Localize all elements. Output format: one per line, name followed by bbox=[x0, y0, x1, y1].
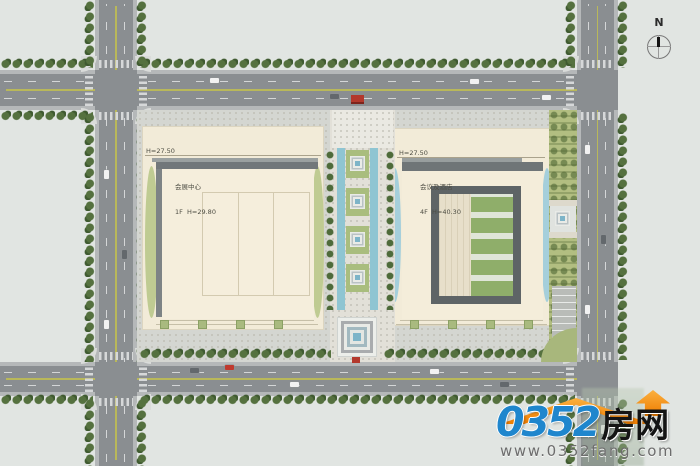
street-tree-row bbox=[565, 0, 577, 68]
axis-entry-plaza bbox=[332, 110, 393, 148]
crosswalk bbox=[581, 352, 614, 360]
planter bbox=[448, 320, 457, 329]
planter bbox=[524, 320, 533, 329]
label-exhibition-platform-elevation: H=27.50 bbox=[146, 147, 175, 155]
car bbox=[430, 369, 439, 374]
crosswalk bbox=[99, 398, 133, 406]
water-channel bbox=[337, 148, 345, 310]
water-channel bbox=[370, 148, 378, 310]
street-tree-row bbox=[84, 0, 96, 68]
label-hotel: 会议及酒店 4F H=40.30 bbox=[420, 166, 461, 234]
crosswalk bbox=[581, 112, 614, 120]
north-label: N bbox=[636, 16, 682, 29]
site-plan: H=27.50 会展中心 1F H=29.80 H=27.50 会议及酒店 4F… bbox=[0, 0, 700, 466]
platform-step-line bbox=[400, 320, 543, 321]
street-tree-row bbox=[0, 58, 93, 70]
crosswalk bbox=[139, 74, 147, 106]
label-exhibition-name: 会展中心 bbox=[175, 183, 216, 191]
label-hotel-name: 会议及酒店 bbox=[420, 183, 461, 191]
street-tree-row bbox=[136, 0, 148, 68]
garden-fountain bbox=[560, 216, 565, 221]
planter bbox=[198, 320, 207, 329]
promenade-tree-row bbox=[139, 348, 331, 360]
intersection-ne bbox=[577, 70, 618, 110]
watermark-url: www.0352fang.com bbox=[500, 442, 674, 460]
car bbox=[104, 170, 109, 179]
crosswalk bbox=[99, 60, 133, 68]
street-tree-row bbox=[139, 58, 575, 70]
crosswalk bbox=[85, 74, 93, 106]
planter bbox=[274, 320, 283, 329]
courtyard-green-terraces bbox=[471, 194, 513, 296]
street-tree-row bbox=[0, 110, 93, 122]
street-tree-row bbox=[136, 398, 148, 466]
crosswalk bbox=[581, 60, 614, 68]
crosswalk bbox=[566, 74, 574, 106]
intersection-sw bbox=[95, 362, 137, 396]
fountain bbox=[355, 199, 360, 204]
car bbox=[190, 368, 199, 373]
fountain bbox=[355, 161, 360, 166]
car bbox=[104, 320, 109, 329]
label-hotel-spec: 4F H=40.30 bbox=[420, 208, 461, 216]
crosswalk bbox=[99, 112, 133, 120]
planter bbox=[410, 320, 419, 329]
watermark: 0352 房网 www.0352fang.com bbox=[488, 388, 700, 466]
fountain bbox=[355, 275, 360, 280]
label-hotel-platform-elevation: H=27.50 bbox=[399, 149, 428, 157]
car bbox=[601, 235, 606, 244]
garden-path bbox=[549, 232, 577, 238]
crosswalk bbox=[139, 366, 147, 392]
car bbox=[585, 305, 590, 314]
planter bbox=[160, 320, 169, 329]
axis-tree-row bbox=[385, 150, 395, 310]
fountain bbox=[355, 237, 360, 242]
car bbox=[500, 382, 509, 387]
car bbox=[210, 78, 219, 83]
car bbox=[122, 250, 127, 259]
car bbox=[585, 145, 590, 154]
planter bbox=[236, 320, 245, 329]
crosswalk bbox=[99, 352, 133, 360]
watermark-logo: 0352 房网 bbox=[496, 402, 669, 443]
street-tree-row bbox=[84, 112, 96, 362]
street-tree-row bbox=[0, 394, 93, 406]
crosswalk bbox=[85, 366, 93, 392]
red-car bbox=[225, 365, 234, 370]
street-tree-row bbox=[617, 0, 629, 68]
axis-tree-row bbox=[325, 150, 335, 310]
car bbox=[290, 382, 299, 387]
entry-gate-marker bbox=[351, 95, 364, 104]
south-entry-marker bbox=[352, 357, 360, 363]
north-compass: N bbox=[636, 16, 682, 76]
street-tree-row bbox=[84, 398, 96, 466]
roof-skylight-grid bbox=[202, 192, 310, 296]
compass-needle bbox=[657, 37, 660, 47]
watermark-suffix: 房网 bbox=[601, 409, 669, 443]
label-exhibition: 会展中心 1F H=29.80 bbox=[175, 166, 216, 234]
car bbox=[542, 95, 551, 100]
label-exhibition-spec: 1F H=29.80 bbox=[175, 208, 216, 216]
watermark-number: 0352 bbox=[496, 402, 598, 443]
car bbox=[470, 79, 479, 84]
street-tree-row bbox=[617, 112, 629, 360]
main-fountain bbox=[353, 333, 361, 341]
planter bbox=[486, 320, 495, 329]
intersection-nw bbox=[95, 70, 137, 110]
car bbox=[330, 94, 339, 99]
